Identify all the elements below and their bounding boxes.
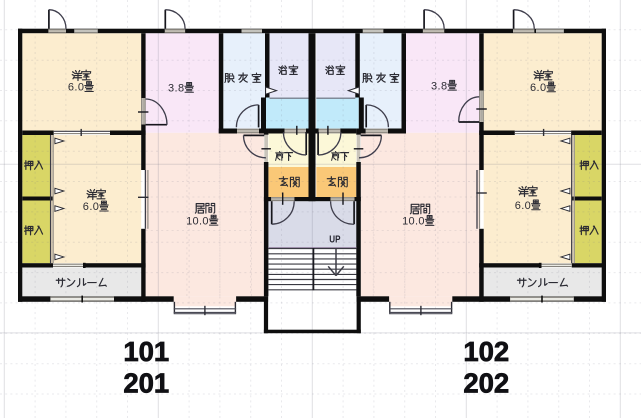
svg-text:3.8: 3.8 xyxy=(431,80,447,92)
svg-text:201: 201 xyxy=(123,367,169,398)
svg-text:202: 202 xyxy=(463,367,509,398)
svg-text:101: 101 xyxy=(123,336,169,367)
svg-text:6.0: 6.0 xyxy=(515,200,531,212)
svg-text:3.8: 3.8 xyxy=(168,83,184,95)
svg-text:102: 102 xyxy=(463,336,509,367)
svg-text:6.0: 6.0 xyxy=(530,82,546,94)
svg-text:6.0: 6.0 xyxy=(68,82,84,94)
svg-text:UP: UP xyxy=(329,234,340,246)
svg-text:10.0: 10.0 xyxy=(402,216,424,228)
svg-text:10.0: 10.0 xyxy=(186,215,208,227)
svg-text:6.0: 6.0 xyxy=(83,201,99,213)
